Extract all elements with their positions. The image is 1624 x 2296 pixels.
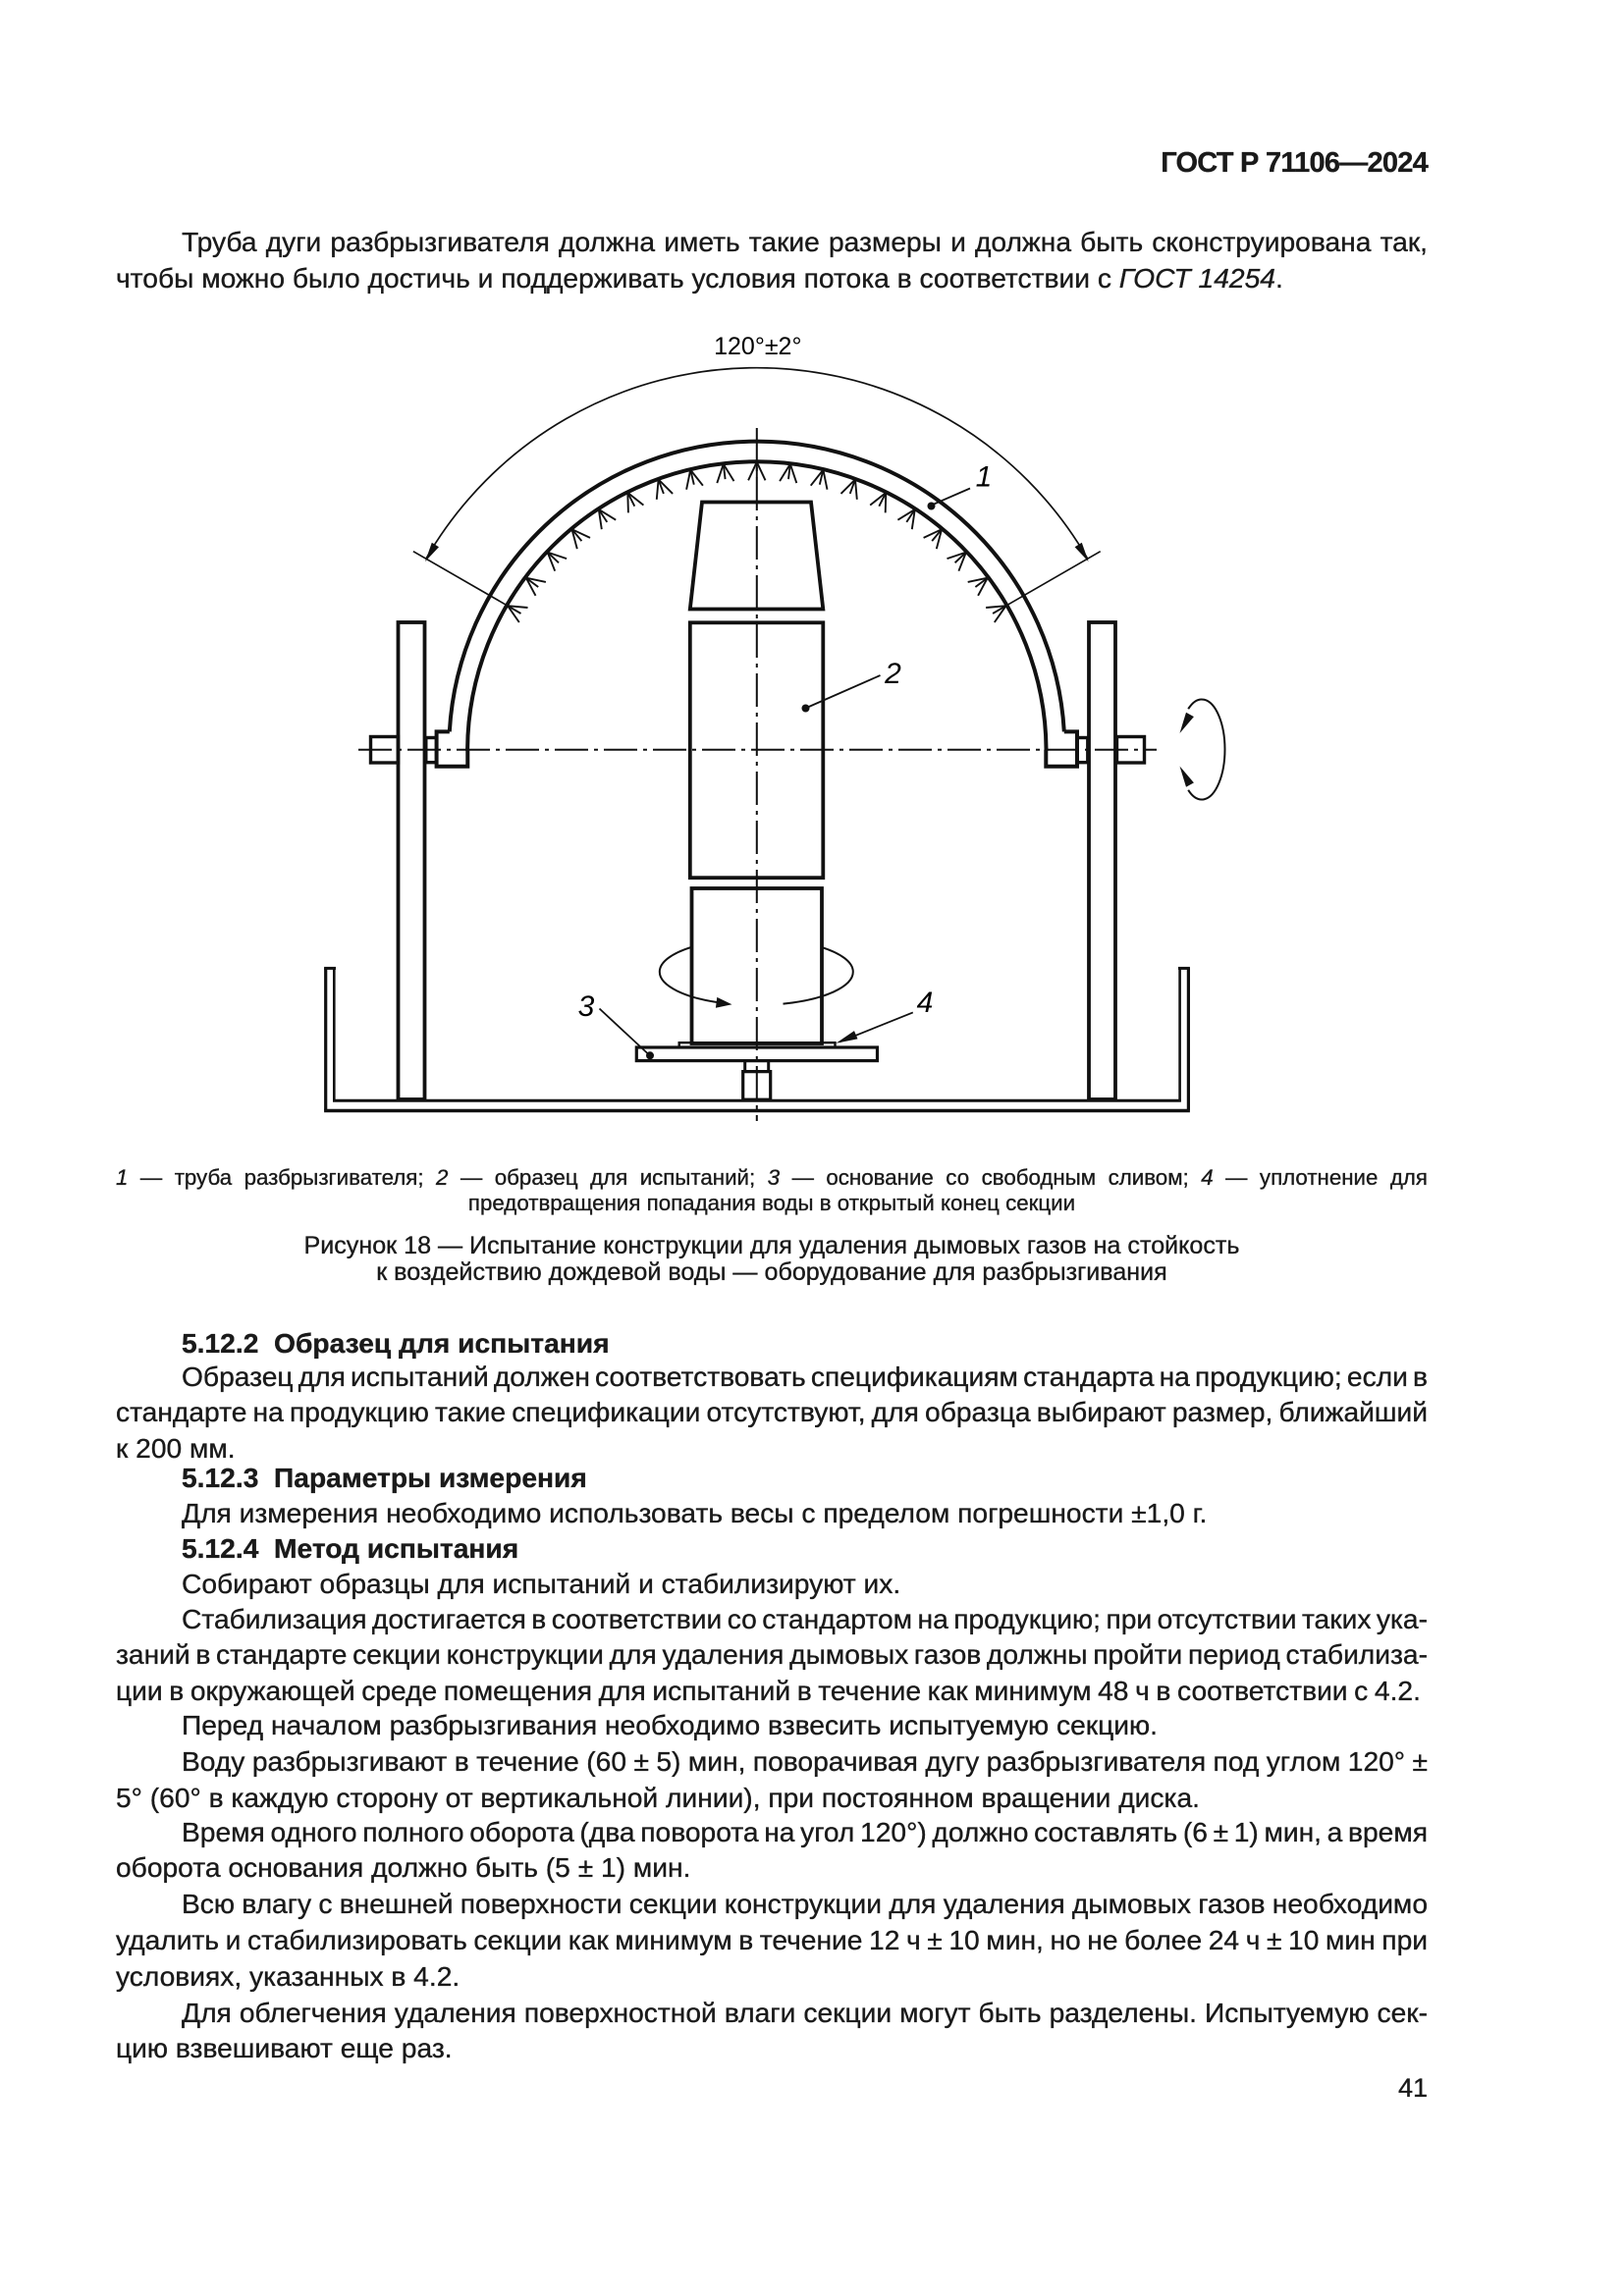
svg-text:4: 4 [917, 987, 934, 1019]
svg-text:2: 2 [884, 658, 901, 690]
svg-text:120°±2°: 120°±2° [714, 333, 801, 360]
svg-text:1: 1 [976, 461, 993, 494]
svg-text:3: 3 [578, 990, 595, 1023]
